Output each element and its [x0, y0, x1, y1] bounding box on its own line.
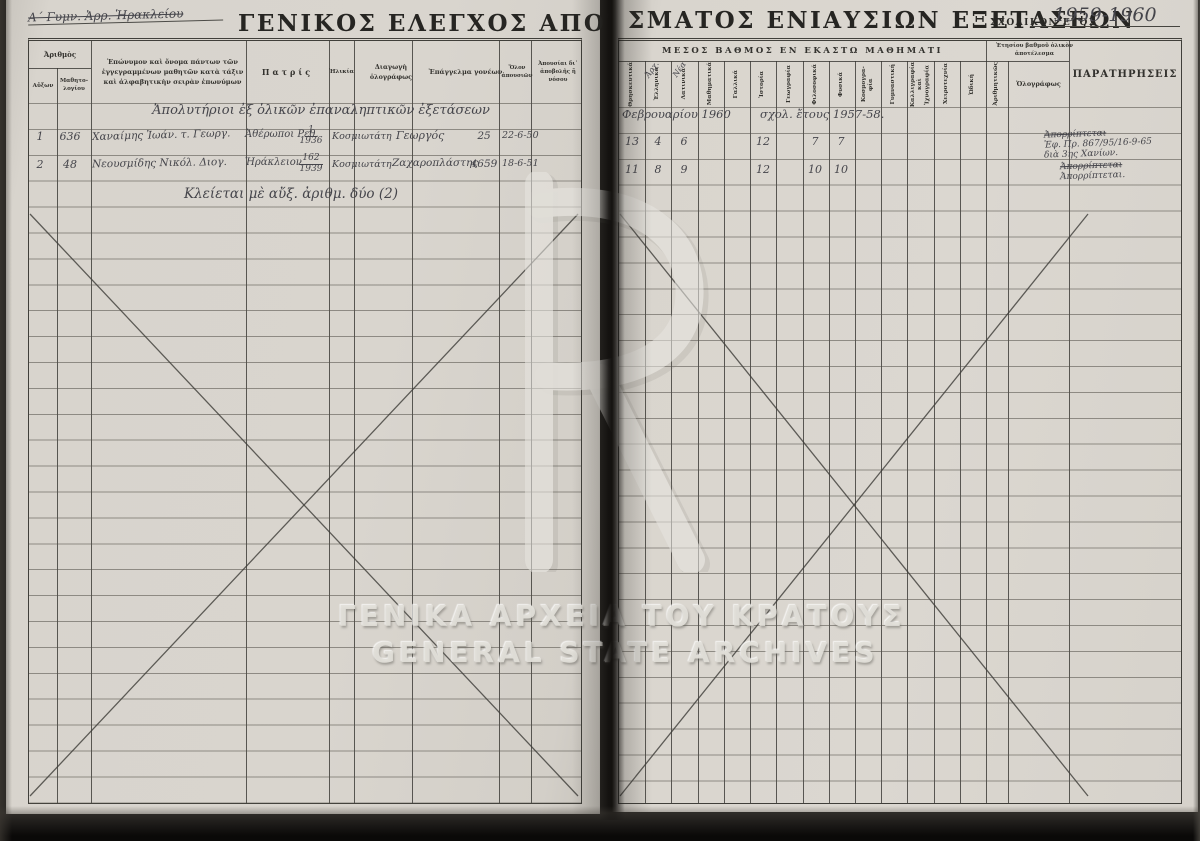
subject-header-kosmografia: Κοσμογρα-φία	[855, 61, 881, 107]
row2-apousiai: 18-6-51	[502, 158, 560, 169]
subject-label: Φιλοσοφικά	[812, 64, 819, 105]
grade-value: 6	[672, 135, 696, 148]
row1-apousiai: 22-6-50	[502, 130, 560, 141]
row2-ilikia: 162 1939	[294, 154, 328, 174]
row1-ilikia: 1 1936	[294, 126, 328, 146]
subject-header-filosofika: Φιλοσοφικά	[803, 61, 829, 107]
remark-row2: Ἀπορρίπτεται Ἀπορρίπτεται.	[1060, 160, 1190, 180]
subject-label: Φυσικά	[838, 72, 845, 97]
subject-label: Κοσμογρα-φία	[861, 62, 875, 107]
subject-header-gymnastiki: Γυμναστική	[881, 61, 907, 107]
grade-value: 7	[829, 135, 853, 148]
handwritten-top-note: Α΄ Γυμν. Ἀρρ. Ἡρακλείου	[28, 5, 223, 25]
school-year-value: 1959-1960	[1030, 4, 1180, 27]
subject-header-odiki: Ὠδική	[960, 61, 986, 107]
closing-note: Κλείεται μὲ αὔξ. ἀριθμ. δύο (2)	[126, 186, 456, 202]
col-header-paratiriseis: ΠΑΡΑΤΗΡΗΣΕΙΣ	[1069, 41, 1181, 107]
row2-olai: 4659	[466, 158, 502, 170]
subject-label: Χειροτεχνία	[943, 63, 950, 104]
remark-row1: Ἀπορρίπτεται Ἐφ. Πρ. 867/95/16-9-65 διὰ …	[1044, 128, 1194, 158]
col-header-olografos: Ὁλογράφως	[1008, 61, 1069, 107]
subject-label: Γαλλικά	[733, 70, 740, 98]
subject-header-geografia: Γεωγραφία	[776, 61, 803, 107]
subject-label: Γυμναστική	[890, 64, 897, 104]
scan-bottom-edge	[0, 806, 1200, 841]
row1-auxon: 1	[30, 130, 50, 143]
grade-value: 10	[803, 163, 827, 176]
scanned-register-spread: Α΄ Γυμν. Ἀρρ. Ἡρακλείου ΓΕΝΙΚΟΣ ΕΛΕΓΧΟΣ …	[0, 0, 1200, 841]
row1-epangelma: Γεωργός	[396, 129, 476, 142]
row2-auxon: 2	[30, 158, 50, 171]
col-header-arithmos: Ἀριθμὸς	[29, 41, 91, 68]
col-header-auxon: Αὔξων	[29, 68, 57, 103]
subject-label: Καλλιγραφία καὶ Ἰχνογραφία	[910, 62, 932, 107]
subject-label: Ἀριθμητικῶς	[993, 62, 1000, 106]
subject-label: Γεωγραφία	[786, 65, 793, 103]
row1-ilikia-year: 1936	[300, 137, 323, 147]
subject-header-fysika: Φυσικά	[829, 61, 855, 107]
col-header-olai-apousiai: Ὅλον ἀπουσιῶν	[499, 41, 535, 103]
row1-ilikia-num: 1	[305, 126, 317, 137]
grade-value: 7	[803, 135, 827, 148]
subject-label: Ἑλληνικά	[654, 67, 661, 100]
col-header-ilikia: Ἡλικία	[329, 41, 354, 103]
subject-header-mathimatika: Μαθηματικά	[698, 61, 724, 107]
row1-olai: 25	[468, 130, 500, 142]
subject-label: Ὠδική	[969, 74, 976, 95]
col-header-arithmitikos: Ἀριθμητικῶς	[986, 61, 1008, 107]
row2-mathitologiou: 48	[52, 158, 88, 171]
grade-value: 12	[751, 135, 775, 148]
book-spine-shadow	[572, 0, 652, 820]
col-header-student-name: Ἐπώνυμον καὶ ὄνομα πάντων τῶν ἐγγεγραμμέ…	[93, 41, 252, 103]
subject-header-cheirotechnia: Χειροτεχνία	[934, 61, 960, 107]
grade-value: 10	[829, 163, 853, 176]
row2-diagogi: Κοσμιωτάτη	[332, 159, 390, 170]
col-header-mathitologiou: Μαθητο- λογίου	[57, 68, 91, 103]
row1-diagogi: Κοσμιωτάτη	[332, 131, 390, 142]
cross-out-lines-left	[28, 212, 580, 798]
session-note: Φεβρουαρίου 1960 σχολ. ἔτους 1957-58.	[622, 107, 884, 121]
scan-left-edge	[0, 0, 12, 841]
section-note: Ἀπολυτήριοι ἐξ ὁλικῶν ἐπαναληπτικῶν ἐξετ…	[86, 103, 556, 118]
subject-header-kalligrafia: Καλλιγραφία καὶ Ἰχνογραφία	[907, 61, 934, 107]
subject-header-istoria: Ἱστορία	[750, 61, 776, 107]
group-header-mesos-vathmos: ΜΕΣΟΣ ΒΑΘΜΟΣ ΕΝ ΕΚΑΣΤΩ ΜΑΘΗΜΑΤΙ	[619, 41, 986, 61]
scan-right-edge	[1193, 0, 1200, 841]
grade-value: 12	[751, 163, 775, 176]
col-header-patris: Πατρίς	[246, 41, 329, 103]
subject-header-gallika: Γαλλικά	[724, 61, 750, 107]
row1-mathitologiou: 636	[52, 130, 88, 143]
subject-label: Μαθηματικά	[707, 62, 714, 105]
row2-ilikia-year: 1939	[300, 165, 323, 175]
row2-ilikia-num: 162	[299, 154, 322, 165]
subject-label: Ἱστορία	[759, 71, 766, 98]
